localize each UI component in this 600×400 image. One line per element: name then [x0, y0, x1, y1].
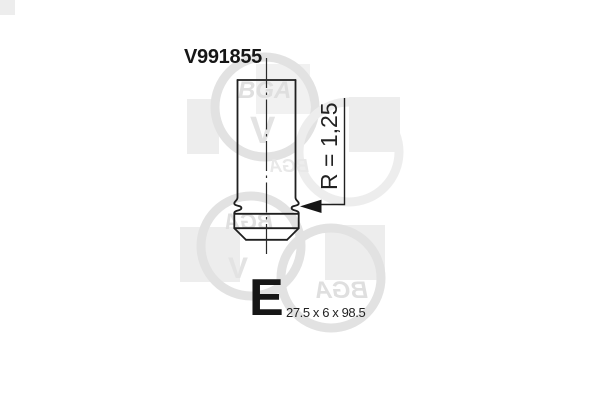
bga-logo-text: BGA	[238, 77, 291, 104]
bga-logo-text-mirrored: BGA	[315, 277, 368, 304]
bga-logo-text-mirrored: BGA	[224, 209, 273, 234]
valve-dimensions: 27.5 x 6 x 98.5	[286, 306, 365, 319]
watermark-square	[0, 0, 15, 15]
bga-wrench-icon: V	[228, 252, 248, 285]
radius-label: R = 1,25	[316, 102, 342, 190]
part-number: V991855	[184, 47, 262, 67]
catalog-image: BGA BGA BGA BGA V V	[0, 0, 600, 400]
valve-type-letter: E	[249, 272, 284, 324]
bga-wrench-icon: V	[250, 110, 276, 152]
valve-technical-drawing: BGA BGA BGA BGA V V	[0, 0, 600, 400]
bga-logo-text-mirrored: BGA	[269, 156, 309, 176]
leader-arrow-icon	[300, 200, 322, 213]
